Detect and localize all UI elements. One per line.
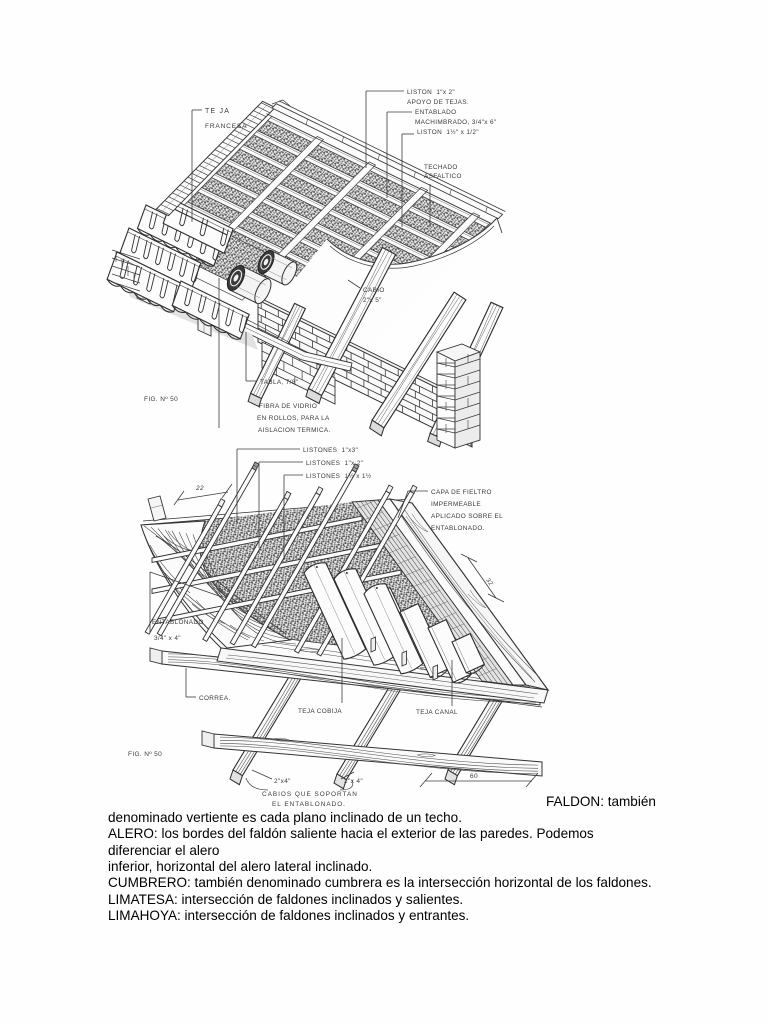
svg-text:CABIO: CABIO [363, 287, 385, 294]
svg-text:FIG. Nº 50: FIG. Nº 50 [144, 396, 178, 403]
svg-text:FIG. Nº 50: FIG. Nº 50 [128, 751, 162, 758]
svg-text:EL ENTABLONADO.: EL ENTABLONADO. [272, 801, 346, 808]
svg-text:LISTONES 1½ x 1½: LISTONES 1½ x 1½ [306, 472, 372, 480]
svg-text:2"x 4": 2"x 4" [344, 778, 363, 785]
svg-text:CABIOS QUE SOPORTAN: CABIOS QUE SOPORTAN [262, 791, 358, 798]
svg-text:3/4" x 4": 3/4" x 4" [154, 635, 181, 642]
svg-text:ENTABLONADO: ENTABLONADO [152, 619, 204, 626]
svg-text:ENTABLADO: ENTABLADO [415, 109, 456, 116]
svg-text:TE JA: TE JA [205, 108, 230, 115]
svg-text:LISTONES 1"x3": LISTONES 1"x3" [303, 447, 358, 454]
svg-text:APOYO DE TEJAS.: APOYO DE TEJAS. [407, 99, 469, 106]
svg-text:TEJA COBIJA: TEJA COBIJA [298, 708, 342, 715]
svg-text:ENTABLONADO.: ENTABLONADO. [431, 525, 485, 532]
svg-text:IMPERMEABLE: IMPERMEABLE [431, 501, 481, 508]
svg-text:FRANCESA: FRANCESA [205, 123, 247, 130]
svg-text:CAPA DE FIELTRO: CAPA DE FIELTRO [431, 489, 492, 496]
svg-text:MACHIMBRADO, 3/4"x 6": MACHIMBRADO, 3/4"x 6" [415, 119, 497, 126]
svg-text:TABLA, 7/8": TABLA, 7/8" [260, 379, 298, 386]
svg-text:LISTON 1"x 2": LISTON 1"x 2" [407, 89, 455, 96]
svg-text:EN ROLLOS, PARA LA: EN ROLLOS, PARA LA [257, 415, 330, 422]
svg-text:AISLACION TERMICA.: AISLACION TERMICA. [258, 427, 331, 434]
svg-text:TECHADO: TECHADO [424, 164, 458, 171]
svg-text:TEJA CANAL: TEJA CANAL [416, 709, 458, 716]
svg-text:22: 22 [195, 485, 204, 492]
svg-text:32: 32 [484, 578, 493, 588]
svg-text:LISTON 1½" x 1/2": LISTON 1½" x 1/2" [417, 128, 479, 136]
svg-text:APLICADO SOBRE EL: APLICADO SOBRE EL [431, 513, 503, 520]
svg-text:2"x4": 2"x4" [274, 778, 291, 785]
svg-text:CORREA.: CORREA. [199, 695, 231, 702]
svg-text:ASFALTICO: ASFALTICO [424, 173, 462, 180]
svg-text:LISTONES 1"x 2": LISTONES 1"x 2" [306, 460, 363, 467]
svg-text:60: 60 [470, 773, 478, 780]
svg-text:FIBRA DE VIDRIO: FIBRA DE VIDRIO [259, 403, 317, 410]
svg-text:2"x 5": 2"x 5" [363, 297, 382, 304]
